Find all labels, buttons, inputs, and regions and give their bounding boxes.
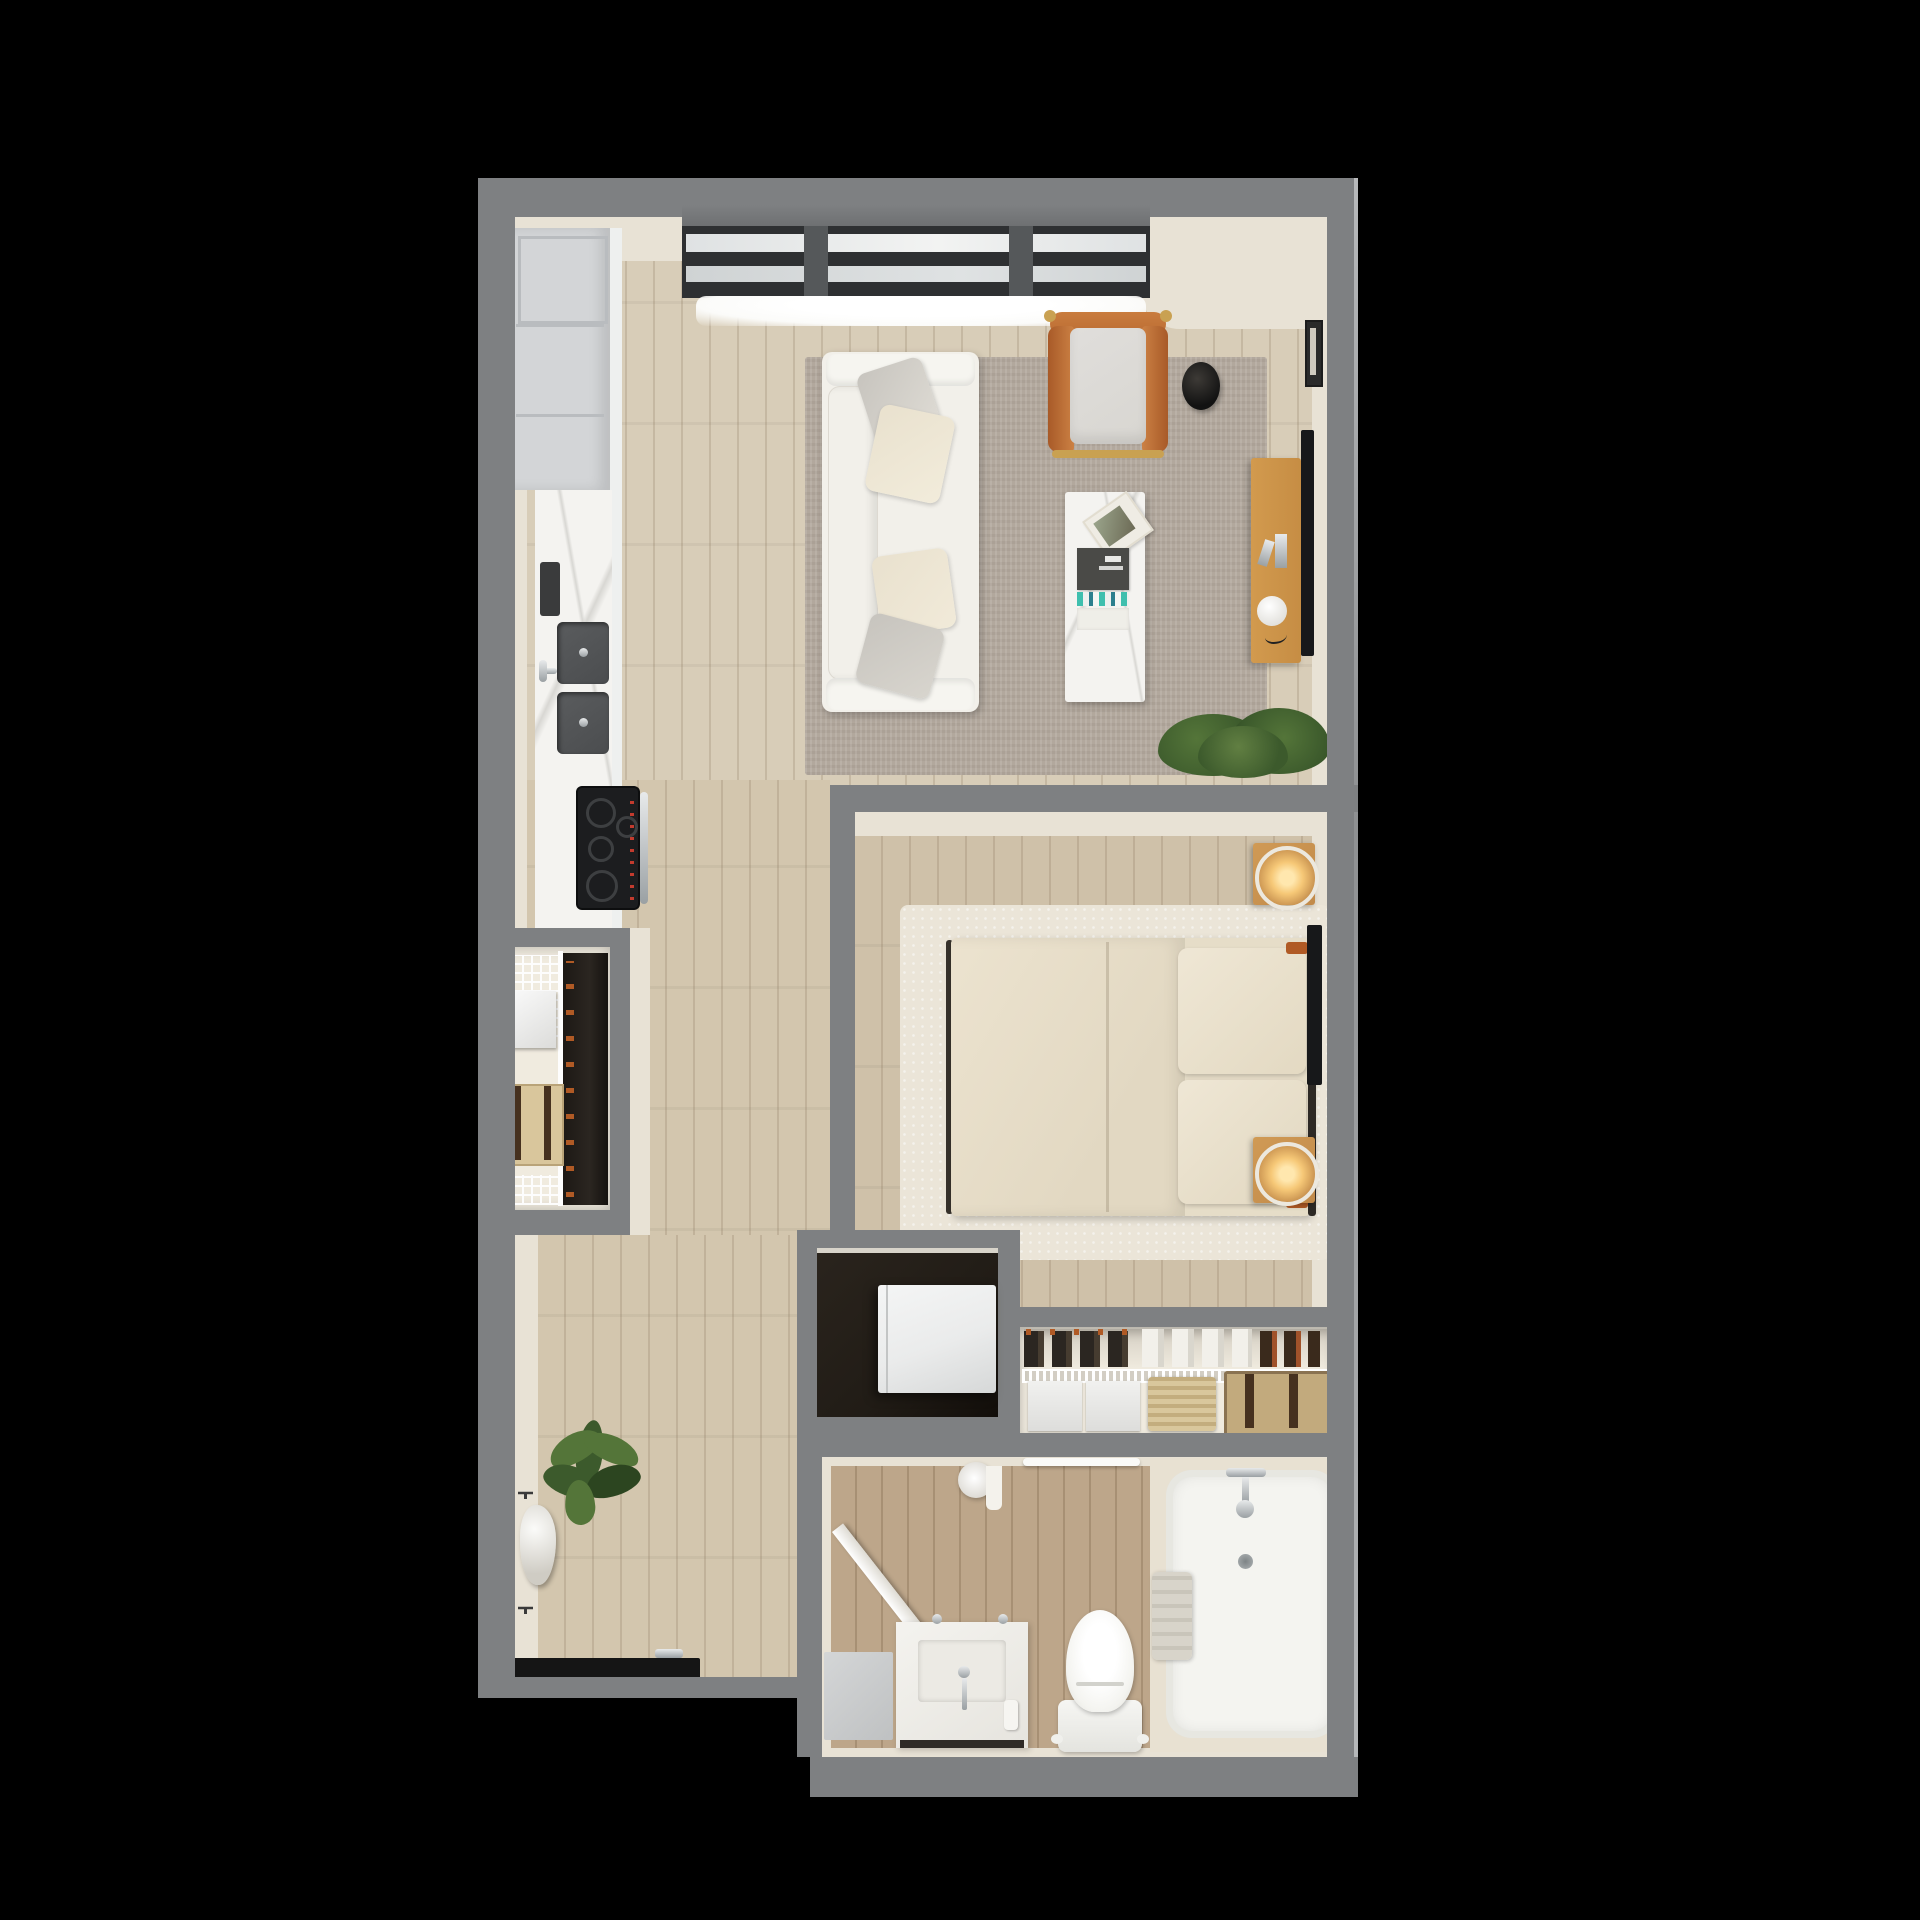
kitchen-range xyxy=(572,788,652,908)
kitchen-sink-basin-1 xyxy=(557,622,609,684)
closet-hanging-row xyxy=(1024,1329,1329,1369)
closet-hanging-clothes xyxy=(562,953,608,1205)
vanity-faucet xyxy=(958,1666,970,1678)
sink-drain xyxy=(579,648,588,657)
lamp-cord xyxy=(1265,628,1287,644)
window-mullion xyxy=(804,226,828,298)
photo-book-cover-image xyxy=(1093,505,1135,546)
cabinet-panel-frame xyxy=(518,236,608,324)
entry-door-handle xyxy=(655,1649,683,1658)
washer-door-seam xyxy=(886,1285,888,1393)
toilet-seat-line xyxy=(1076,1682,1124,1686)
sofa xyxy=(822,352,979,712)
window-glass-row xyxy=(686,234,1146,252)
kitchen-sink-basin-2 xyxy=(557,692,609,754)
leather-bags xyxy=(1260,1331,1320,1367)
cabinet-panel-line xyxy=(516,414,604,417)
entry-door xyxy=(513,1658,700,1679)
dark-garments xyxy=(1024,1331,1134,1367)
headboard-strap xyxy=(1286,942,1308,954)
dark-book-subtitle xyxy=(1099,566,1123,570)
bathroom-vanity xyxy=(896,1622,1028,1748)
oven-handle xyxy=(640,792,648,904)
side-table xyxy=(1182,362,1220,410)
window-mullion xyxy=(1009,226,1033,298)
frame-mat xyxy=(1310,328,1316,375)
burner xyxy=(588,836,614,862)
bathroom-cabinet xyxy=(824,1652,893,1740)
floor-plan-render xyxy=(0,0,1920,1920)
nightstand-top xyxy=(1253,843,1315,905)
living-tv xyxy=(1301,430,1314,656)
vanity-faucet-handle xyxy=(998,1614,1008,1624)
towel-bar xyxy=(1023,1458,1140,1466)
closet-storage-box xyxy=(508,991,556,1048)
window-band xyxy=(682,226,1150,298)
wall-left xyxy=(478,178,515,1698)
bed-pillow-top xyxy=(1178,948,1306,1074)
coat-closet-interior xyxy=(500,947,610,1210)
burner xyxy=(586,798,616,828)
coffee-table-white-book xyxy=(1077,608,1129,630)
wall-bedroom-top xyxy=(830,785,1358,812)
bedroom-closet-top-band xyxy=(1020,1307,1345,1327)
wall-top-window-header xyxy=(682,205,1150,226)
tub-shower-head xyxy=(1236,1500,1254,1518)
trunk-strap xyxy=(1289,1374,1298,1428)
wall-right-highlight xyxy=(1354,178,1358,1797)
closet-east-face xyxy=(630,928,650,1235)
bed-duvet xyxy=(951,938,1185,1216)
bedroom-inner-face xyxy=(855,812,1330,836)
coffee-table-striped-book xyxy=(1077,592,1129,606)
nightstand-lamp xyxy=(1255,1142,1319,1206)
chair-knob-right xyxy=(1160,310,1172,322)
wall-bathroom-left xyxy=(797,1457,822,1757)
nightstand-bottom xyxy=(1253,1137,1315,1203)
laundry-interior-trim xyxy=(817,1248,998,1253)
coffee-table xyxy=(1065,492,1145,702)
duvet-crease xyxy=(1106,942,1109,1212)
coffee-table-dark-book xyxy=(1077,548,1129,590)
console-remote-2 xyxy=(1275,534,1287,568)
wire-rail xyxy=(558,951,563,1206)
kitchen-small-appliance xyxy=(540,562,560,616)
toilet xyxy=(1053,1610,1147,1755)
wall-bedroom-left xyxy=(830,812,855,1230)
vanity-faucet-handle xyxy=(932,1614,942,1624)
cooktop xyxy=(578,788,638,908)
wall-bottom-bathroom xyxy=(810,1757,1358,1797)
vanity-kick-shadow xyxy=(900,1740,1024,1748)
nightstand-lamp xyxy=(1255,846,1319,910)
wall-bottom-entry xyxy=(478,1677,810,1698)
cooktop-controls xyxy=(630,796,634,900)
tub-faucet-bar xyxy=(1226,1468,1266,1477)
laundry-closet-interior xyxy=(817,1248,998,1417)
toilet-bowl xyxy=(1066,1610,1134,1712)
vanity-soap-pump xyxy=(1004,1700,1018,1730)
closet-drawer-unit xyxy=(1086,1381,1140,1431)
chair-cushion xyxy=(1070,328,1146,444)
kitchen-faucet-base xyxy=(539,660,547,682)
dark-book-title xyxy=(1105,556,1121,562)
chair-bottom-rail xyxy=(1052,450,1164,458)
kitchen-tall-cabinet xyxy=(510,228,610,490)
tub-drain xyxy=(1238,1554,1253,1569)
suitcase-strap xyxy=(544,1086,551,1160)
bedroom-tv xyxy=(1307,925,1322,1085)
washer-dryer-unit xyxy=(878,1285,996,1393)
bedroom-closet-bottom-band xyxy=(1020,1433,1358,1457)
cabinet-panel-line xyxy=(516,324,604,327)
closet-travel-trunk xyxy=(1224,1371,1330,1437)
trunk-strap xyxy=(1245,1374,1254,1428)
media-console xyxy=(1251,458,1301,663)
bedroom-closet-interior xyxy=(1020,1327,1333,1433)
toilet-bolt-cap xyxy=(1051,1734,1063,1744)
clothes-hangers xyxy=(566,961,574,1197)
toilet-bolt-cap xyxy=(1137,1734,1149,1744)
sink-drain xyxy=(579,718,588,727)
entry-plant xyxy=(537,1420,647,1525)
toilet-paper-sheet xyxy=(986,1466,1002,1510)
window-glass-row xyxy=(686,266,1146,282)
white-garments xyxy=(1142,1329,1252,1367)
closet-drawer-unit xyxy=(1028,1381,1082,1431)
wall-picture-frame xyxy=(1305,320,1323,387)
console-sphere-lamp xyxy=(1257,596,1287,626)
suitcase-strap xyxy=(514,1086,521,1160)
garment-hangers xyxy=(1026,1329,1134,1335)
accent-chair xyxy=(1048,312,1168,465)
closet-woven-basket xyxy=(1148,1377,1216,1431)
bathtub-deck xyxy=(1150,1458,1345,1752)
burner xyxy=(586,870,618,902)
chair-knob-left xyxy=(1044,310,1056,322)
console-remote xyxy=(1257,539,1275,567)
living-room-plant xyxy=(1158,708,1330,778)
burner xyxy=(616,816,638,838)
tub-towel xyxy=(1152,1572,1192,1660)
vanity-faucet-spout xyxy=(962,1678,967,1710)
